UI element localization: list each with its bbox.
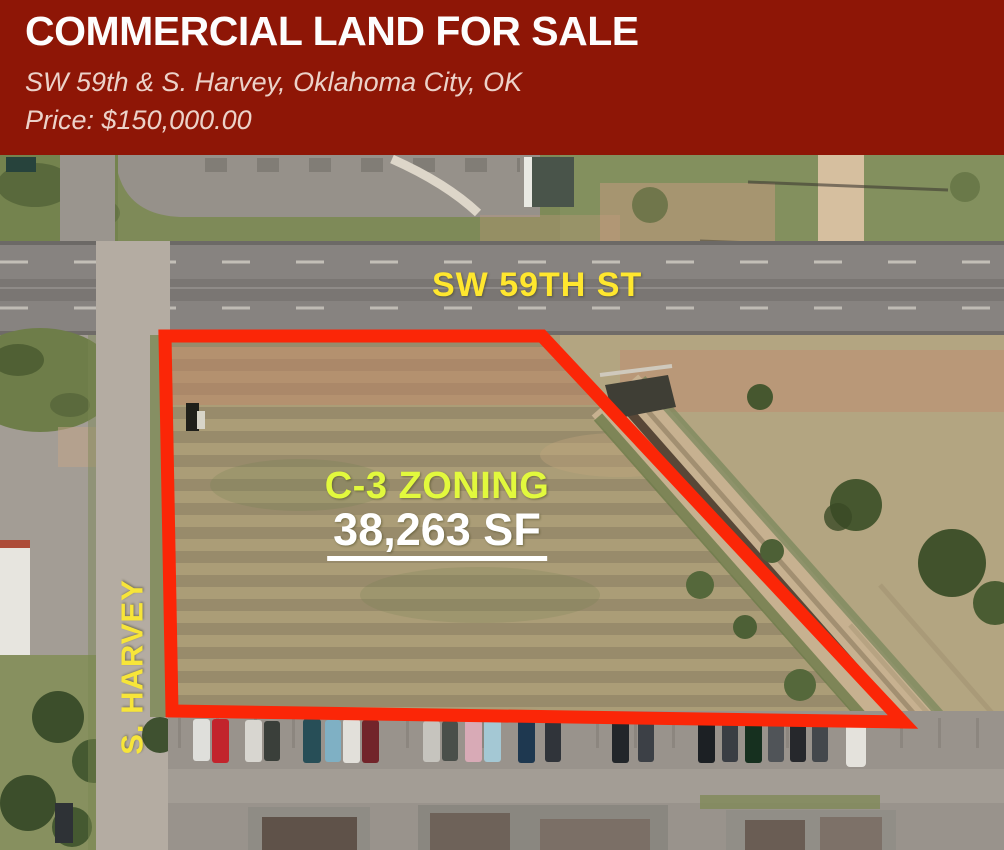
building-roof [532, 157, 574, 207]
tree [747, 384, 773, 410]
grass-strip [700, 795, 880, 809]
price-line: Price: $150,000.00 [25, 107, 1004, 134]
dirt-strip-east [620, 350, 1004, 412]
listing-header: COMMERCIAL LAND FOR SALE SW 59th & S. Ha… [0, 0, 1004, 155]
street-label-s-harvey: S. HARVEY [117, 579, 148, 755]
shrub [784, 669, 816, 701]
page-title: COMMERCIAL LAND FOR SALE [25, 8, 1004, 55]
tree [950, 172, 980, 202]
area-value: 38,263 SF [327, 507, 547, 561]
tree [32, 691, 84, 743]
tree [0, 775, 56, 831]
tree [918, 529, 986, 597]
street-label-sw-59th: SW 59TH ST [432, 268, 642, 302]
concrete-pad [600, 183, 775, 243]
gravel-driveway [818, 155, 864, 243]
white-roof-building [0, 548, 30, 660]
shrub [686, 571, 714, 599]
address-line: SW 59th & S. Harvey, Oklahoma City, OK [25, 69, 1004, 96]
south-parking [168, 711, 1004, 850]
tree [632, 187, 668, 223]
parked-car [55, 803, 73, 843]
aerial-map: SW 59TH ST C-3 ZONING 38,263 SF S. HARVE… [0, 155, 1004, 850]
area-label: 38,263 SF [327, 507, 547, 561]
shrub [733, 615, 757, 639]
parked-car [6, 157, 36, 172]
zoning-label: C-3 ZONING [325, 467, 550, 505]
shrub [760, 539, 784, 563]
driveway [60, 155, 115, 243]
